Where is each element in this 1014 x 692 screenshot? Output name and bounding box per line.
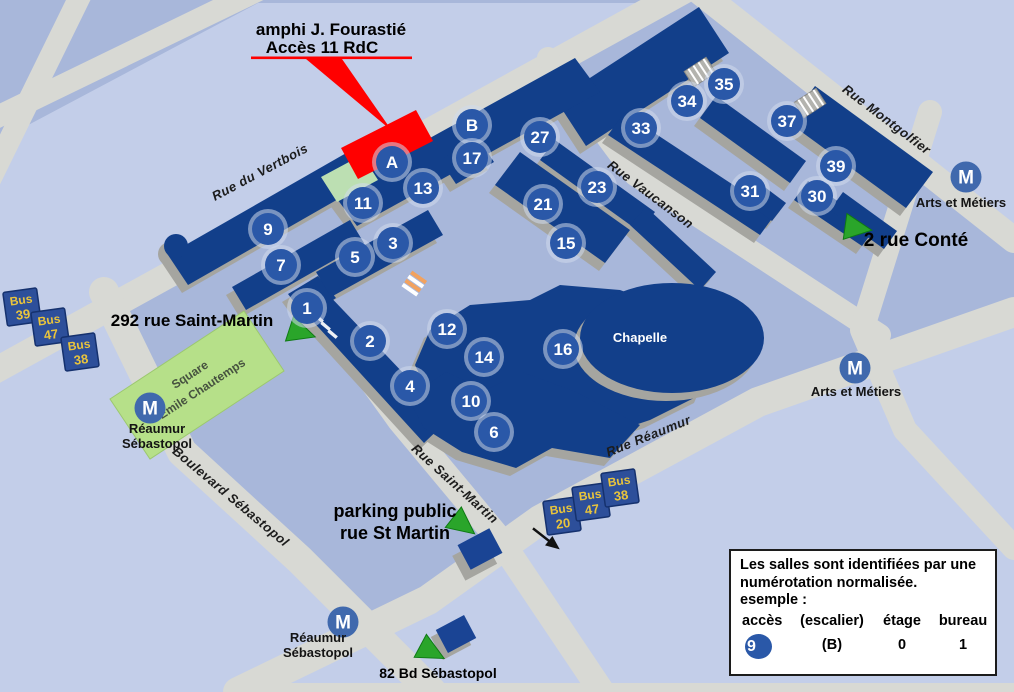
access-marker-label: 12	[438, 320, 457, 339]
entrance-label: parking public	[333, 501, 456, 521]
access-marker-label: 21	[534, 195, 553, 214]
access-marker-label: 3	[388, 234, 397, 253]
bus-line-number: 20	[555, 515, 571, 532]
legend-line1: Les salles sont identifiées par une	[740, 557, 986, 575]
legend-ex-bureau: 1	[932, 637, 994, 655]
chapelle-label: Chapelle	[613, 330, 667, 345]
access-marker-label: 7	[276, 256, 285, 275]
metro-station-name: Sébastopol	[283, 645, 353, 660]
access-marker-34: 34	[667, 81, 707, 121]
legend-ex-escalier: (B)	[792, 637, 872, 655]
bus-stop-38: Bus38	[61, 333, 99, 371]
metro-m-glyph: M	[958, 168, 974, 189]
access-marker-21: 21	[523, 184, 563, 224]
access-marker-A: A	[372, 142, 412, 182]
entrance-label: 292 rue Saint-Martin	[111, 311, 274, 330]
bus-line-number: 47	[43, 326, 59, 343]
access-marker-label: 31	[741, 182, 760, 201]
metro-station-name: Arts et Métiers	[811, 384, 901, 399]
access-marker-label: 15	[557, 234, 576, 253]
access-marker-label: 37	[778, 112, 797, 131]
access-marker-5: 5	[335, 237, 375, 277]
access-marker-label: 6	[489, 423, 498, 442]
access-marker-label: B	[466, 116, 478, 135]
access-marker-label: 1	[302, 299, 311, 318]
access-marker-label: 33	[632, 119, 651, 138]
legend-col-escalier: (escalier)	[792, 613, 872, 631]
access-marker-13: 13	[403, 168, 443, 208]
bus-line-number: 39	[15, 306, 31, 323]
legend-col-bureau: bureau	[932, 613, 994, 631]
access-marker-17: 17	[452, 138, 492, 178]
metro-m-glyph: M	[142, 399, 158, 420]
entrance-label: 2 rue Conté	[864, 230, 969, 251]
legend-box: Les salles sont identifiées par une numé…	[729, 549, 997, 676]
access-marker-39: 39	[816, 146, 856, 186]
access-marker-4: 4	[390, 366, 430, 406]
legend-col-acces: accès	[740, 613, 792, 631]
access-marker-label: 35	[715, 75, 734, 94]
access-marker-label: 16	[554, 340, 573, 359]
access-marker-35: 35	[704, 64, 744, 104]
access-marker-label: 39	[827, 157, 846, 176]
bus-stop-38: Bus38	[601, 469, 639, 507]
access-marker-label: 14	[475, 348, 494, 367]
access-marker-10: 10	[451, 381, 491, 421]
bus-line-number: 47	[584, 501, 600, 518]
legend-columns: accès (escalier) étage bureau	[740, 613, 986, 631]
access-marker-label: 34	[678, 92, 697, 111]
legend-col-etage: étage	[872, 613, 932, 631]
access-marker-2: 2	[350, 321, 390, 361]
access-marker-label: 4	[405, 377, 415, 396]
access-marker-37: 37	[767, 101, 807, 141]
access-marker-14: 14	[464, 337, 504, 377]
access-marker-15: 15	[546, 223, 586, 263]
metro-station-name: Arts et Métiers	[916, 195, 1006, 210]
legend-line2: numérotation normalisée.	[740, 575, 986, 593]
access-marker-label: 10	[462, 392, 481, 411]
legend-example-row: 9 (B) 0 1	[740, 634, 986, 659]
legend-line3: esemple :	[740, 592, 986, 610]
entrance-label: rue St Martin	[340, 523, 450, 543]
access-marker-label: 17	[463, 149, 482, 168]
access-marker-label: 13	[414, 179, 433, 198]
access-marker-27: 27	[520, 117, 560, 157]
access-marker-33: 33	[621, 108, 661, 148]
entrance-label: 82 Bd Sébastopol	[379, 665, 496, 681]
access-marker-7: 7	[261, 245, 301, 285]
access-marker-1: 1	[287, 288, 327, 328]
access-marker-label: 23	[588, 178, 607, 197]
access-marker-11: 11	[343, 183, 383, 223]
legend-ex-etage: 0	[872, 637, 932, 655]
access-marker-label: A	[386, 153, 398, 172]
campus-map: Chapelle Square Emile Chautemps amphi J.…	[0, 0, 1014, 692]
metro-m-glyph: M	[847, 359, 863, 380]
bus-line-number: 38	[73, 351, 89, 368]
access-marker-12: 12	[427, 309, 467, 349]
legend-access-circle: 9	[745, 634, 772, 659]
metro-station-name: Réaumur	[129, 421, 185, 436]
access-marker-label: 27	[531, 128, 550, 147]
access-marker-label: 5	[350, 248, 359, 267]
round-tower	[164, 234, 188, 258]
access-marker-16: 16	[543, 329, 583, 369]
access-marker-3: 3	[373, 223, 413, 263]
metro-station-name: Réaumur	[290, 630, 346, 645]
access-marker-label: 30	[808, 187, 827, 206]
access-marker-9: 9	[248, 209, 288, 249]
access-marker-label: 2	[365, 332, 374, 351]
access-marker-label: 11	[354, 194, 372, 213]
map-title-line2: Accès 11 RdC	[266, 38, 378, 57]
bus-line-number: 38	[613, 487, 629, 504]
access-marker-label: 9	[263, 220, 272, 239]
ramp-icon	[401, 271, 427, 297]
access-marker-31: 31	[730, 171, 770, 211]
map-title-line1: amphi J. Fourastié	[256, 20, 406, 39]
